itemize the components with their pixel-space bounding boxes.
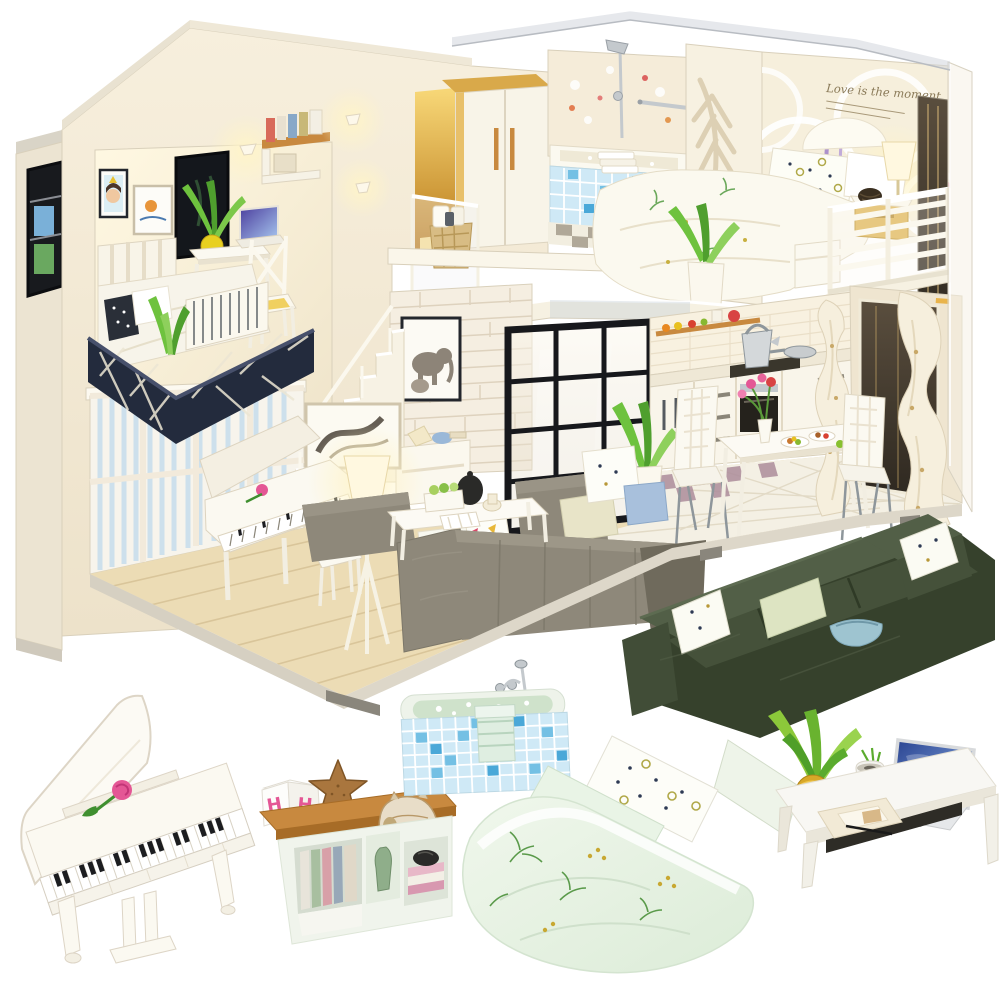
stacked-books <box>408 850 444 895</box>
furniture-desk <box>768 709 998 888</box>
dollhouse-illustration: Love is the moment <box>0 0 1000 986</box>
framed-girl-portrait <box>100 170 127 217</box>
pan <box>784 346 816 358</box>
towel-stack <box>598 152 638 173</box>
left-annex <box>16 130 62 662</box>
product-photo: Love is the moment <box>0 0 1000 986</box>
red-pot <box>728 310 740 322</box>
pedal-lyre <box>110 891 176 963</box>
framed-bird-art <box>134 186 172 234</box>
acrylic-right-wall <box>948 62 972 512</box>
framed-elephant-print <box>402 318 460 400</box>
tub-faucet <box>496 660 528 693</box>
furniture-grand-piano <box>21 696 255 963</box>
tub-towel <box>475 705 517 763</box>
green-vase <box>375 847 391 891</box>
annex-art-green <box>34 244 54 274</box>
book-spines <box>300 844 357 910</box>
wardrobe-hall <box>412 74 550 312</box>
annex-art-blue <box>34 206 54 236</box>
